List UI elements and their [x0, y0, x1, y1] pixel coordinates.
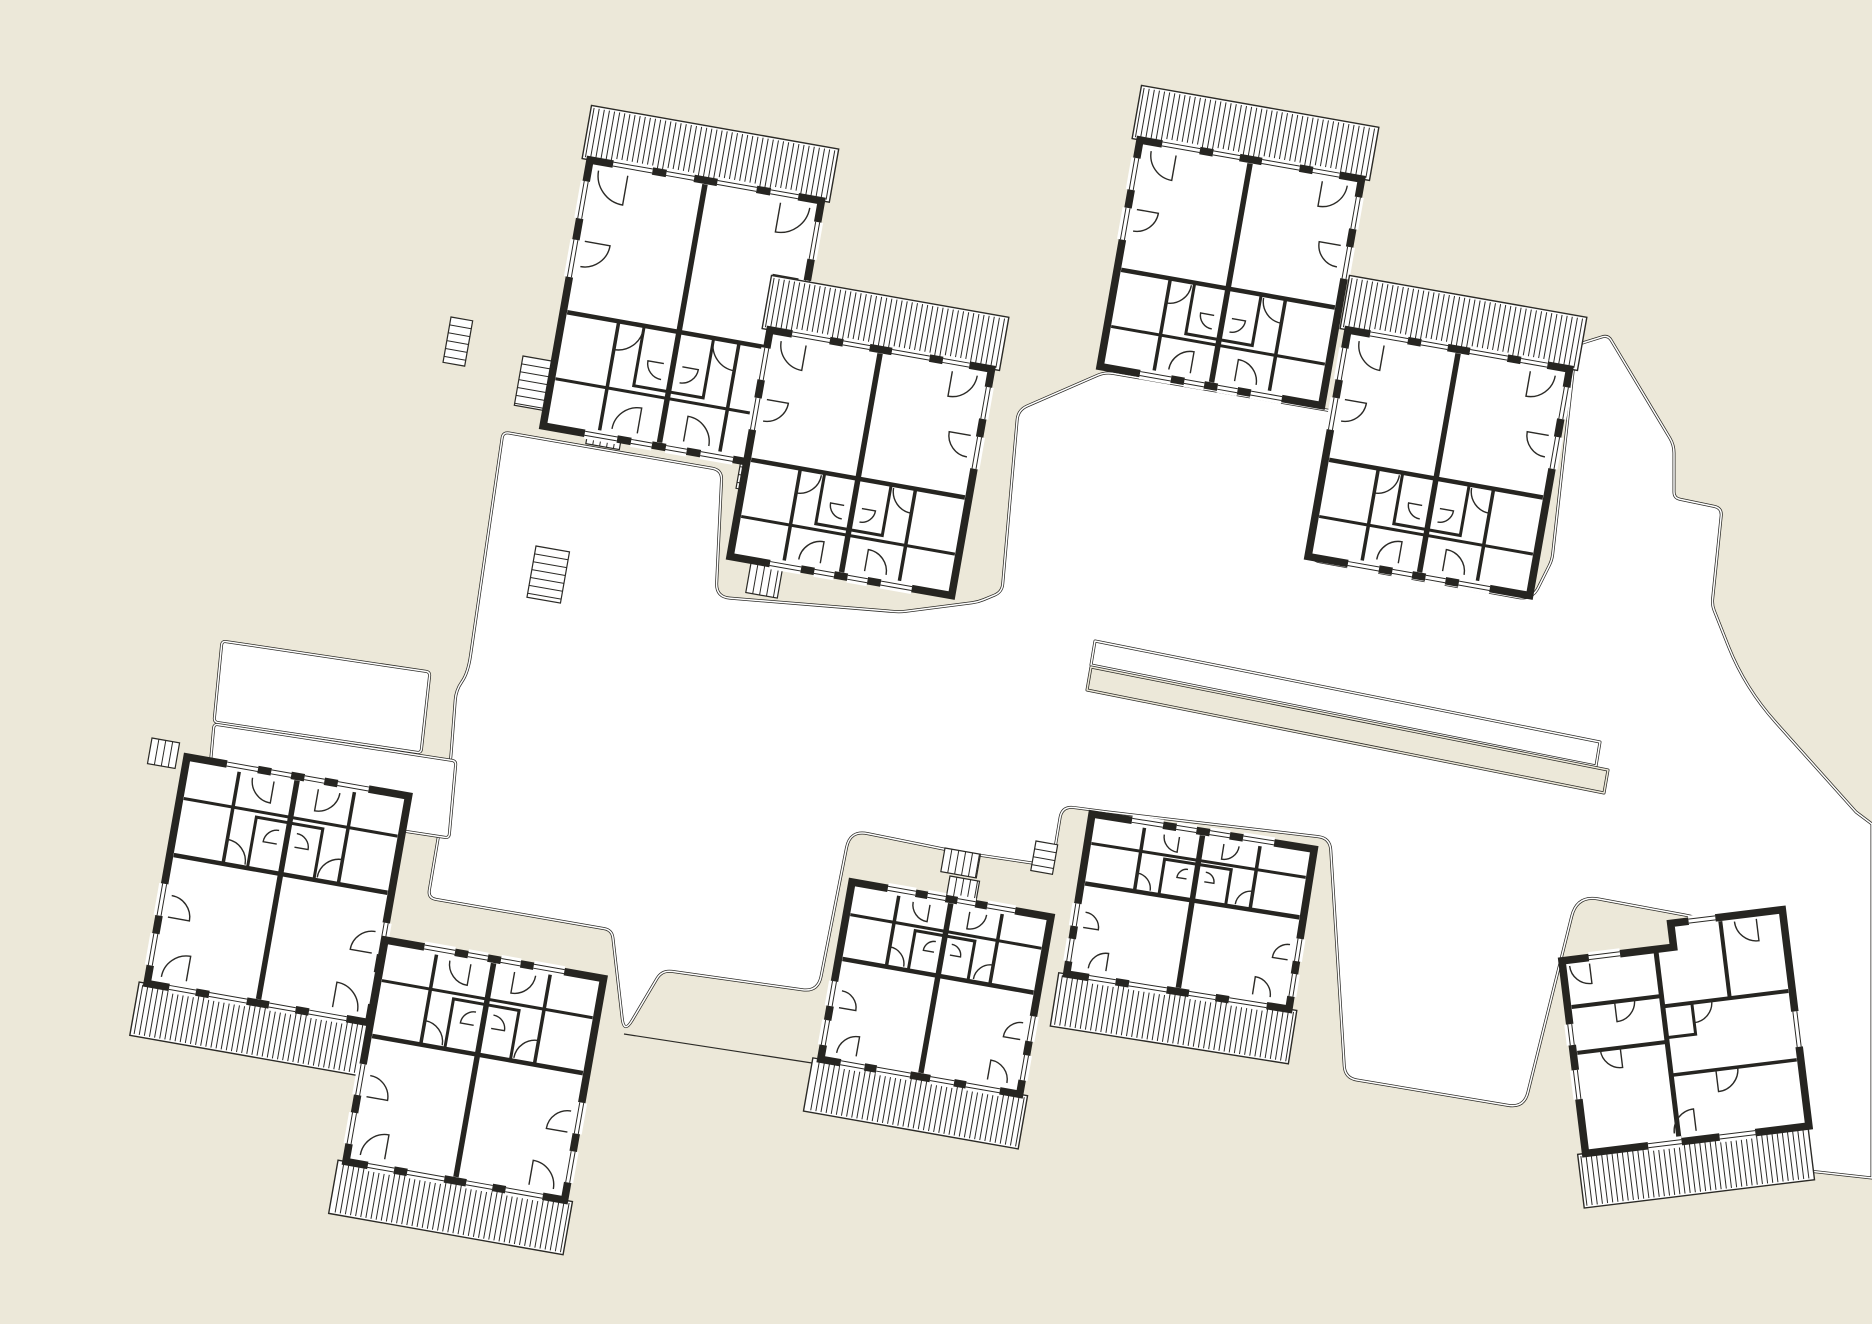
stair-outline	[1031, 841, 1058, 874]
stair-steps-10	[147, 738, 179, 768]
floor-plan-page	[0, 0, 1872, 1324]
stair-steps-6	[1031, 841, 1058, 874]
site-plan-canvas	[0, 0, 1872, 1324]
unit-8-body	[1050, 807, 1323, 1063]
building-unit-8	[1050, 807, 1323, 1063]
